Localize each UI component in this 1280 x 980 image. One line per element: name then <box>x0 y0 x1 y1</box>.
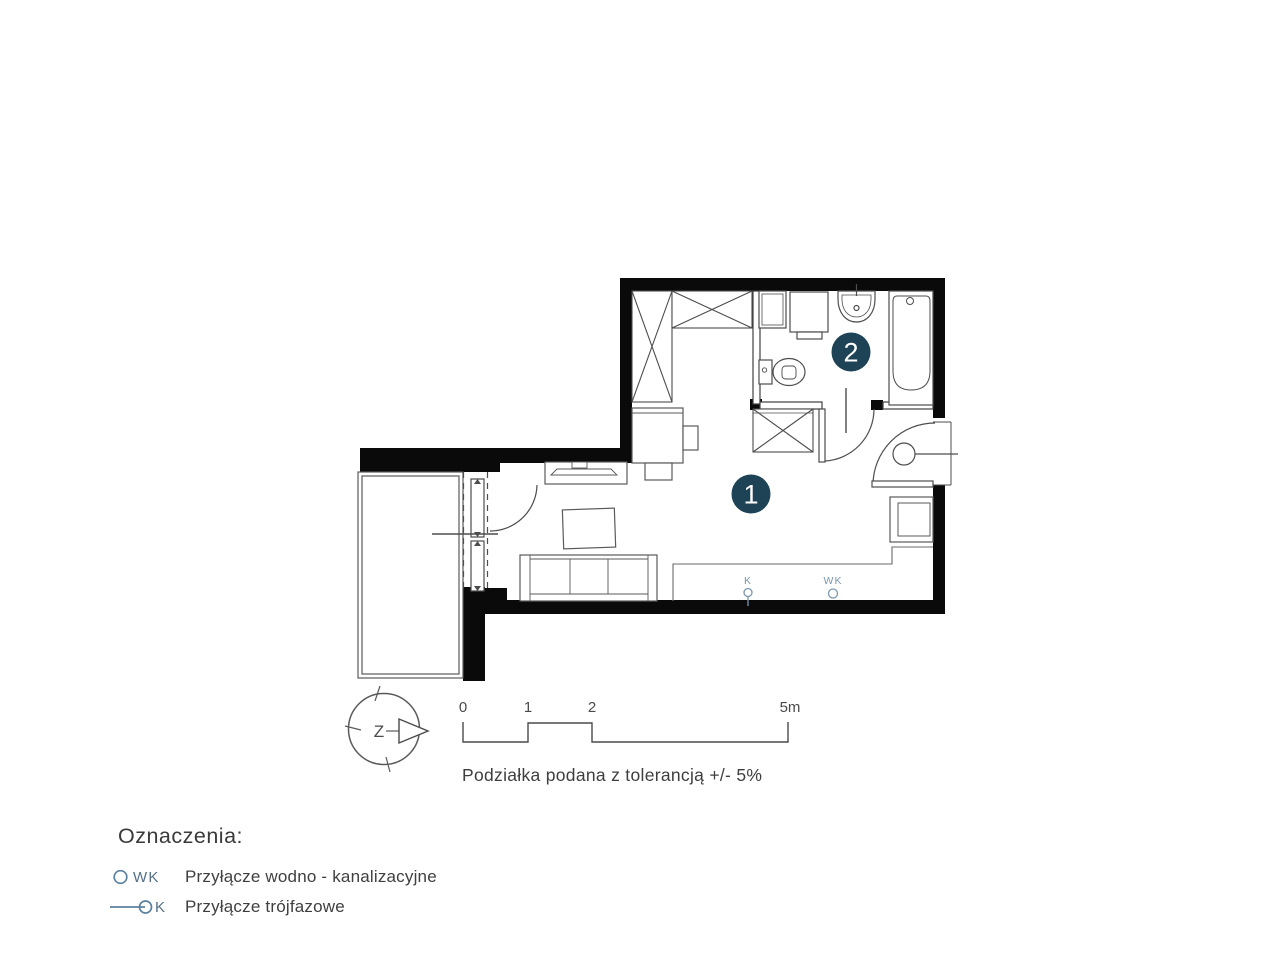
scale-bar: 0 1 2 5m Podziałka podana z tolerancją +… <box>459 699 801 785</box>
wall-bottom <box>485 600 945 614</box>
k-utility-label: K <box>744 575 752 587</box>
legend-item-k: K Przyłącze trójfazowe <box>110 892 437 922</box>
wall-upper-left <box>620 278 632 463</box>
room-marker-2-label: 2 <box>843 338 858 368</box>
legend: Oznaczenia: WK Przyłącze wodno - kanaliz… <box>110 824 437 922</box>
balcony <box>358 472 463 678</box>
balcony-window-panel <box>471 541 484 591</box>
furniture <box>520 408 933 601</box>
k-line-circle-icon: K <box>110 897 185 917</box>
desk-chair-right <box>683 426 698 450</box>
room-marker-1-label: 1 <box>743 480 758 510</box>
compass-tick <box>345 726 361 730</box>
entry-symbol-circle <box>893 443 915 465</box>
kitchen-annex-outline <box>673 547 933 601</box>
closet-wardrobes <box>632 291 752 402</box>
compass-direction-label: Z <box>374 722 384 741</box>
scale-bar-line <box>463 722 788 742</box>
tv-screen <box>551 469 617 475</box>
desk-table <box>632 408 683 463</box>
balcony-outer <box>358 472 463 678</box>
k-utility-circle-icon <box>744 589 752 597</box>
wall-right-lower <box>933 485 945 614</box>
balcony-door-panel <box>471 479 484 537</box>
entry-door-leaf <box>872 481 933 487</box>
compass-arrow-icon <box>399 719 428 743</box>
wk-circle-icon: WK <box>110 867 185 887</box>
wall-left-lower <box>463 587 485 681</box>
wall-bottom-step <box>485 588 507 614</box>
room-marker-1: 1 <box>732 475 771 514</box>
scale-tick-2: 2 <box>588 699 596 716</box>
wall-room-top-left <box>360 448 500 472</box>
coffee-table <box>562 508 615 549</box>
bathroom-wall-bottom-left <box>760 402 822 409</box>
balcony-door-swing-arc <box>490 485 537 531</box>
legend-title: Oznaczenia: <box>118 824 437 849</box>
wall-room-top-right <box>498 448 632 463</box>
wk-utility-label: WK <box>824 575 843 587</box>
desk-chair-bottom <box>645 463 672 480</box>
toilet-button <box>762 368 766 372</box>
wk-utility-circle-icon <box>829 589 838 598</box>
wall-post-right <box>871 400 883 410</box>
sink-drain <box>854 306 859 311</box>
legend-item-wk: WK Przyłącze wodno - kanalizacyjne <box>110 862 437 892</box>
legend-code-wk: WK <box>133 869 160 886</box>
hall <box>753 409 813 452</box>
toilet-bowl-inner <box>782 366 796 379</box>
wall-right-upper <box>933 278 945 418</box>
scale-caption: Podziałka podana z tolerancją +/- 5% <box>462 765 762 785</box>
scale-tick-0: 0 <box>459 699 467 716</box>
wk-utility-marker: WK <box>824 575 843 598</box>
bathroom-door-swing-arc <box>825 409 874 461</box>
bathtub-inner <box>893 296 930 390</box>
radiator-inner <box>898 503 930 536</box>
scale-tick-5m: 5m <box>780 699 801 716</box>
legend-desc-k: Przyłącze trójfazowe <box>185 897 345 917</box>
entry-door <box>872 422 958 487</box>
room-marker-2: 2 <box>832 333 871 372</box>
wall-top <box>620 278 945 291</box>
wk-circle-shape <box>114 871 127 884</box>
tv-stand <box>572 462 587 468</box>
scale-tick-1: 1 <box>524 699 532 716</box>
compass: Z <box>345 686 428 772</box>
floor-plan-page: { "plan": { "room_markers": [ {"label": … <box>0 0 1280 980</box>
legend-desc-wk: Przyłącze wodno - kanalizacyjne <box>185 867 437 887</box>
bath-cabinet <box>790 292 828 332</box>
bathtub-drain <box>907 298 914 305</box>
bath-cabinet-tab <box>797 332 822 339</box>
balcony-inner <box>362 476 459 674</box>
bathroom-door-leaf <box>819 409 825 462</box>
legend-code-k: K <box>155 899 166 916</box>
washing-machine-inner <box>762 294 783 325</box>
